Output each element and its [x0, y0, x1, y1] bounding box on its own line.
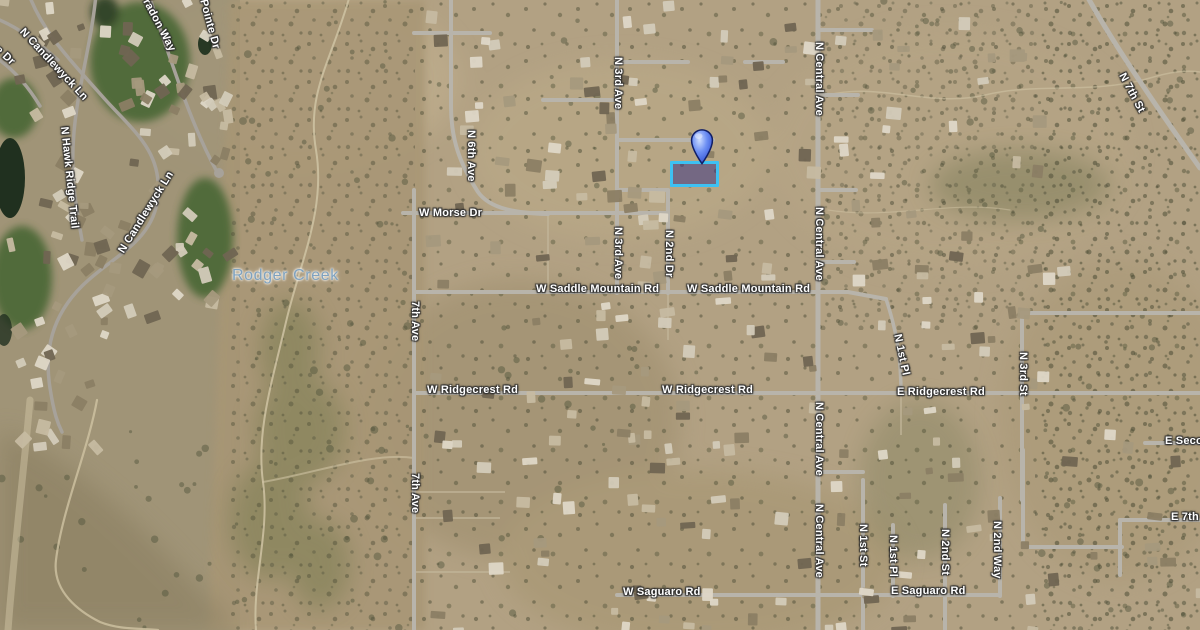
location-marker-pin[interactable] — [688, 128, 716, 166]
satellite-map[interactable]: Rodger Creek N Candlewyck Ln N Candlewyc… — [0, 0, 1200, 630]
satellite-imagery — [0, 0, 1200, 630]
